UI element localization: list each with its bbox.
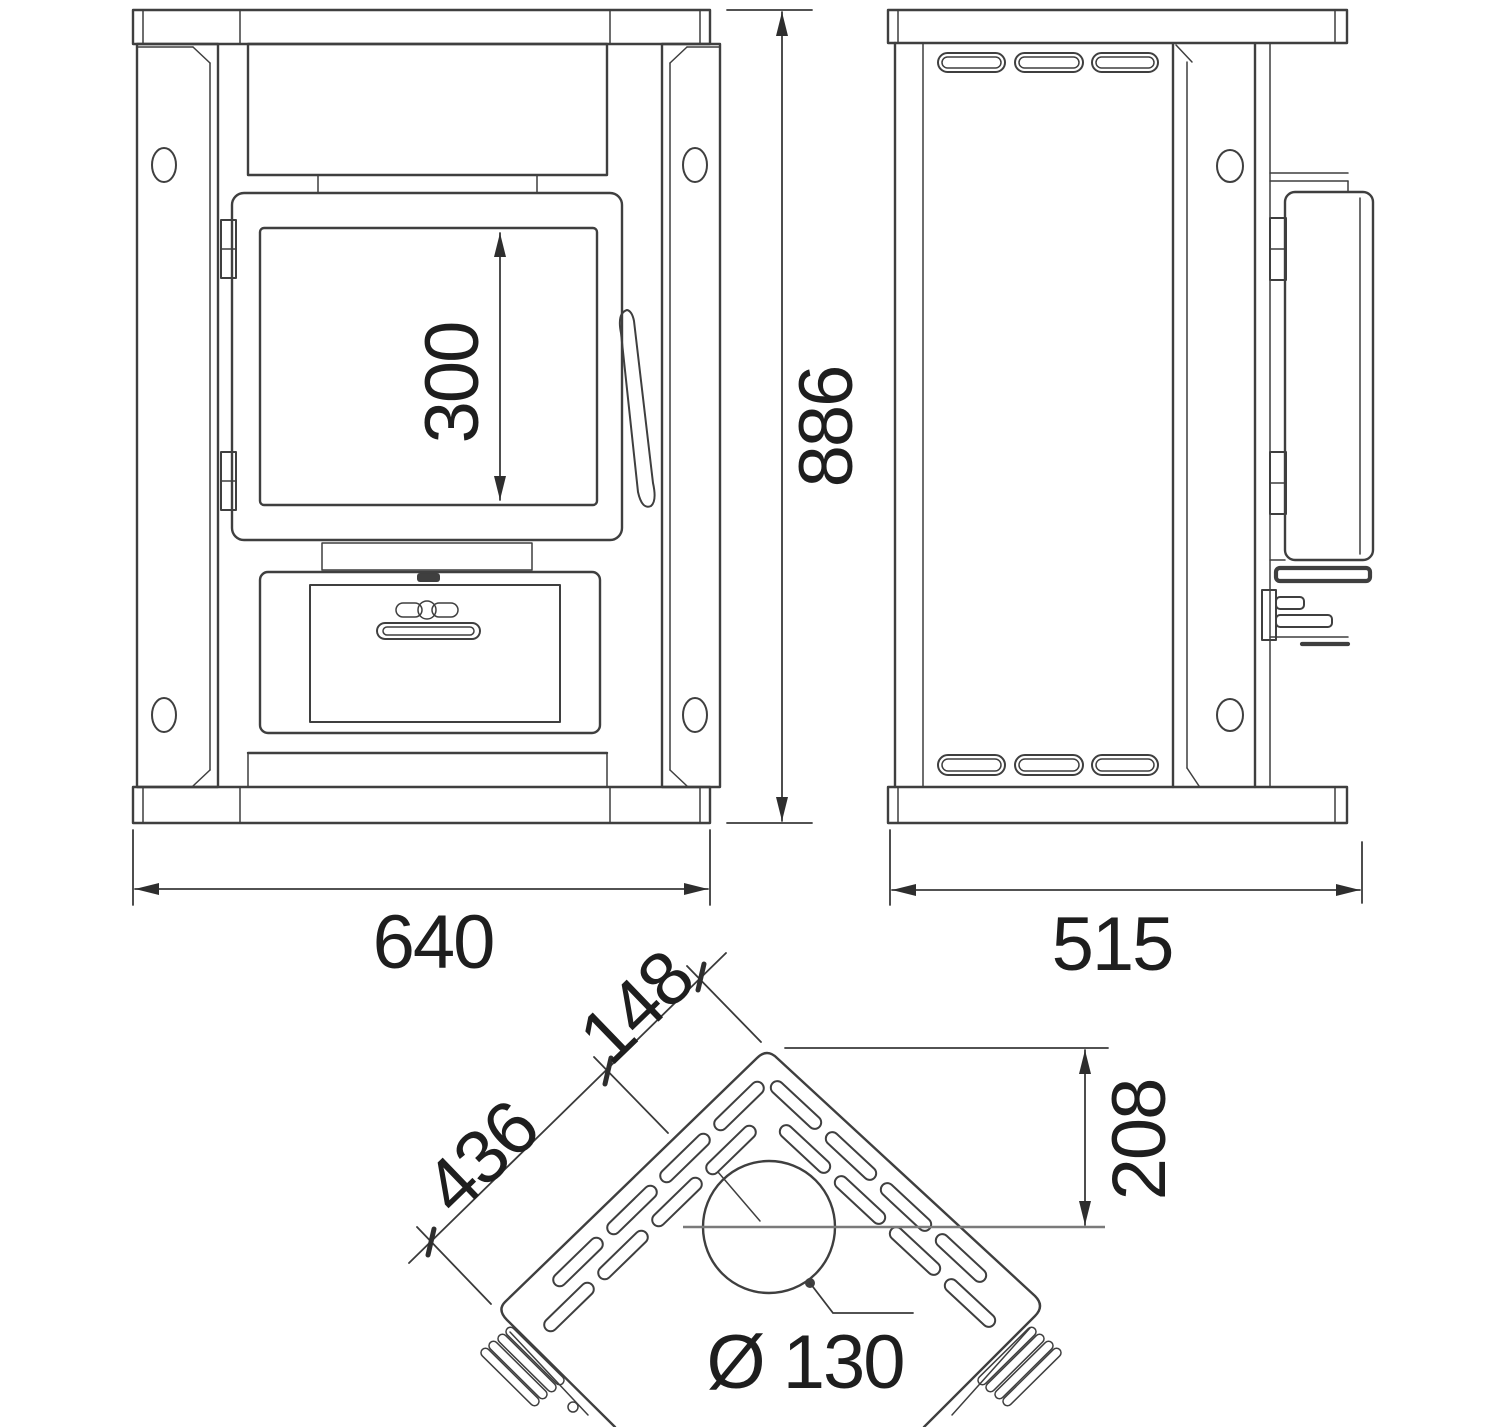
plan-hinge-knuckles-left [479,1325,566,1407]
stove-dimension-drawing: 300 886 640 515 436 [0,0,1500,1427]
ash-drawer-handle [377,623,480,639]
dim-overall-depth-label: 515 [1052,902,1173,987]
front-lower-panel [248,753,607,787]
side-latch-assembly [1262,568,1370,644]
mount-hole-top-left [152,148,176,182]
side-hole-bottom [1217,699,1243,731]
plan-vent-slots-right-edge [768,1078,998,1329]
front-right-column [662,44,720,787]
side-hinge-top [1270,218,1286,280]
dim-glass-height: 300 [410,233,500,500]
dim-top-corner-segment-label: 148 [563,935,709,1080]
side-vent-slots-top [938,53,1158,72]
top-right-edge-inner-line [952,1328,1030,1415]
side-panel-outline [895,43,1270,787]
front-left-column [137,44,218,787]
dim-flue-diameter-label: Ø 130 [706,1320,903,1405]
front-door-top-trim [318,175,537,193]
door-hinge-bottom [221,452,236,510]
dim-side-panel-width-label: 436 [408,1085,554,1230]
dim-overall-width-label: 640 [373,900,494,985]
ash-drawer [260,572,600,733]
side-hole-top [1217,150,1243,182]
air-control-knob [396,601,458,619]
dim-overall-height: 886 [727,10,869,823]
dim-flue-center-offset: 208 [785,1048,1182,1225]
side-top-plate [888,10,1347,43]
ash-lip-latch [417,573,440,582]
front-base-plate [133,787,710,823]
front-door-bottom-trim [322,543,532,570]
front-top-plate [133,10,710,44]
plan-hinge-knuckles-right [976,1325,1063,1407]
drawing-canvas: 300 886 640 515 436 [0,0,1500,1427]
dim-side-panel-width: 436 148 [408,935,761,1304]
plan-foot-bolt [568,1402,578,1412]
side-base-plate [888,787,1347,823]
dim-glass-height-label: 300 [410,323,495,444]
side-door-profile [1262,173,1373,644]
mount-hole-bottom-left [152,698,176,732]
front-upper-recess-panel [248,44,607,175]
dim-overall-height-label: 886 [784,367,869,488]
dim-flue-center-offset-label: 208 [1097,1080,1182,1201]
plan-vent-slots-left-edge [542,1079,767,1334]
mount-hole-bottom-right [683,698,707,732]
side-hinge-bottom [1270,452,1286,514]
dimensions: 300 886 640 515 436 [133,10,1362,1405]
mount-hole-top-right [683,148,707,182]
side-view [888,10,1373,823]
flue-radius-tick [718,1172,760,1221]
dim-flue-diameter: Ø 130 [706,1278,913,1405]
dim-overall-depth: 515 [890,830,1362,987]
door-hinge-top [221,220,236,278]
side-vent-slots-bottom [938,755,1158,775]
door-handle [620,310,655,507]
